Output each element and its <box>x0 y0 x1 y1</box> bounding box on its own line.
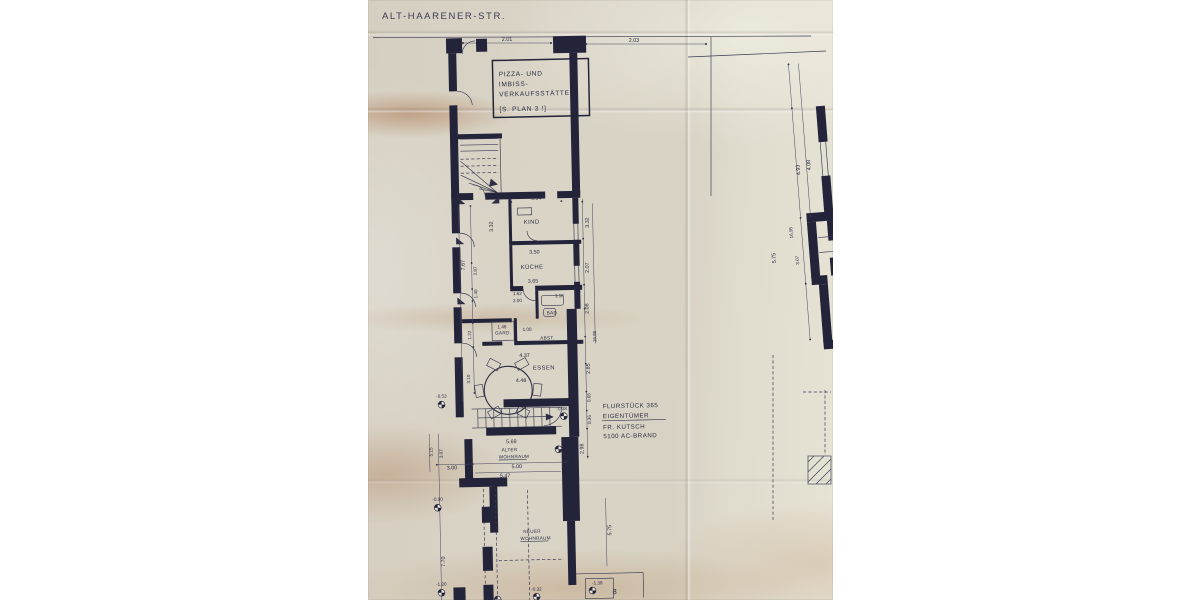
dim-365: 3.65 <box>528 279 539 285</box>
elev-038: -0.38 <box>556 406 567 411</box>
shop-note-line4: [S. PLAN 3 !] <box>499 105 546 113</box>
room-label-essen: ESSEN <box>533 365 555 371</box>
hatched-wall-corner <box>808 456 831 484</box>
dim-036: 0.36 <box>587 415 592 424</box>
owner-line1: FLURSTÜCK 365 <box>603 402 659 410</box>
dim-162: 1.62 <box>513 291 522 296</box>
dim-201: 2.01 <box>502 37 513 43</box>
dim-493-right: 4.93 <box>795 164 802 175</box>
room-label-kind: KIND <box>524 220 540 226</box>
neighbor-plan: 4.93 4.08 16.95 5.75 3.07 <box>757 60 833 353</box>
owner-line3: FR. KUTSCH <box>603 423 645 431</box>
shop-note-line1: PIZZA- UND <box>499 70 543 78</box>
room-label-gard: GARD. <box>495 330 511 335</box>
owner-line4: 5100 AC-BRAND <box>603 432 657 440</box>
dim-146: 1.46 <box>497 324 506 329</box>
dim-065: 0.65 <box>586 393 591 402</box>
dim-575-right: 5.75 <box>771 253 778 264</box>
elev-120: -1.20 <box>436 582 447 587</box>
floor-plan-drawing: ALT-HAARENER-STR. 2.01 2.03 <box>368 0 833 600</box>
elev-138: -1.38 <box>592 580 603 585</box>
dim-307-left: 3.07 <box>439 449 444 458</box>
main-plan: PIZZA- UND IMBISS- VERKAUFSSTÄTTE [S. PL… <box>420 34 670 600</box>
dim-287: 2.87 <box>473 266 478 275</box>
dim-307-right: 3.07 <box>794 255 800 265</box>
property-outline <box>688 37 826 196</box>
room-label-abst: ABST. <box>540 335 554 340</box>
dim-575-mid: 5.75 <box>607 525 613 536</box>
dim-767: 7.67 <box>461 260 467 271</box>
dim-437: 4.37 <box>519 353 530 359</box>
dim-8: 8 <box>612 587 616 596</box>
dim-300: 3.00 <box>447 465 458 471</box>
room-label-kueche: KÜCHE <box>521 264 544 271</box>
dim-500: 5.00 <box>512 464 523 470</box>
room-label-neuer-1: NEUER <box>523 529 541 534</box>
dim-298: 2.98 <box>579 443 585 454</box>
blueprint-photo: ALT-HAARENER-STR. 2.01 2.03 <box>368 0 833 600</box>
dim-122: 1.22 <box>467 330 472 339</box>
dim-140: 1.40 <box>473 289 478 298</box>
dim-332-left: 3.32 <box>489 221 495 232</box>
staircase-upper <box>460 138 499 193</box>
dim-770: 7.70 <box>441 556 447 567</box>
dim-207: 2.07 <box>585 262 591 273</box>
dim-408: 4.08 <box>806 160 813 171</box>
dim-203: 2.03 <box>629 38 640 44</box>
dim-547: 5.47 <box>500 473 511 479</box>
neighbor-plan-lower <box>773 355 831 520</box>
elev-053: -0.53 <box>436 394 447 399</box>
dim-200: 2.00 <box>513 298 522 303</box>
dim-569: 5.69 <box>506 439 517 445</box>
shop-note-line2: IMBISS- <box>499 81 529 89</box>
elev-032: -0.32 <box>531 587 542 592</box>
dim-332-right: 3.32 <box>585 217 591 228</box>
dim-100: 1.00 <box>522 327 531 332</box>
facade-walls <box>446 36 586 56</box>
shop-note-line3: VERKAUFSSTÄTTE <box>499 89 570 98</box>
dim-1685: 16.85 <box>592 330 597 342</box>
street-label: ALT-HAARENER-STR. <box>382 11 506 22</box>
street: ALT-HAARENER-STR. 2.01 2.03 <box>373 11 811 45</box>
dim-493-left: 4.93 <box>455 358 461 369</box>
dim-118: 1.18 <box>555 293 564 298</box>
room-label-bad: BAD <box>547 310 558 315</box>
staircase-lower <box>471 398 572 436</box>
room-label-alter-2: WOHNRAUM <box>499 454 530 460</box>
screenshot: ALT-HAARENER-STR. 2.01 2.03 <box>0 0 1200 600</box>
owner-note: FLURSTÜCK 365 EIGENTÜMER FR. KUTSCH 5100… <box>602 402 667 440</box>
dim-208: 2.08 <box>584 303 590 314</box>
dim-285: 2.85 <box>586 363 592 374</box>
dim-350: 3.50 <box>529 250 540 256</box>
elev-090: -0.90 <box>432 497 443 502</box>
shop-section: PIZZA- UND IMBISS- VERKAUFSSTÄTTE [S. PL… <box>448 51 591 200</box>
dim-1695: 16.95 <box>788 226 794 238</box>
dim-515: 5.15 <box>428 447 433 456</box>
dim-310: 3.10 <box>466 374 471 383</box>
owner-line2: EIGENTÜMER <box>603 412 649 420</box>
room-label-alter-1: ALTER <box>501 447 517 452</box>
dim-354: 3.54 <box>531 196 542 202</box>
dim-448: 4.48 <box>516 378 527 384</box>
room-labels: KIND KÜCHE BAD ABST. GARD. ESSEN ALTER W… <box>493 219 562 542</box>
room-label-neuer-2: WOHNRAUM <box>520 535 551 541</box>
